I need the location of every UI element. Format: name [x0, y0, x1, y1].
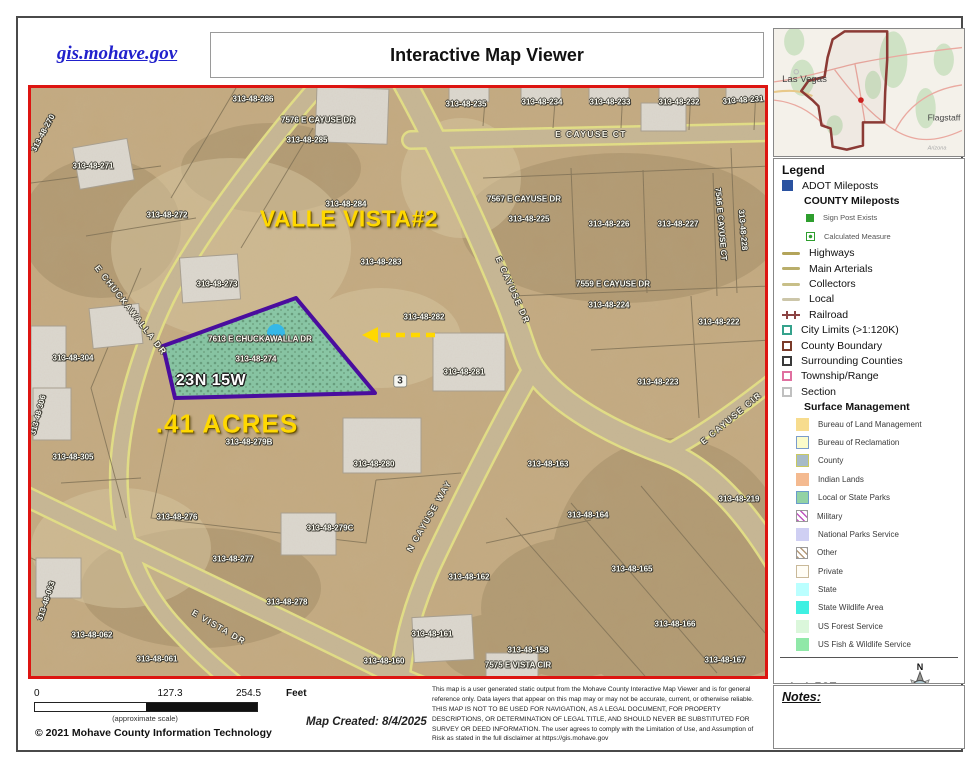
legend-item: Surrounding Counties — [782, 354, 964, 367]
legend-hatch-icon — [796, 510, 808, 522]
legend-item: Indian Lands — [782, 471, 964, 487]
legend-item-label: Railroad — [809, 309, 848, 321]
map-canvas: 313-48-270313-48-271313-48-272313-48-273… — [28, 85, 768, 679]
legend-item-label: Bureau of Reclamation — [818, 438, 899, 447]
legend-item: Sign Post Exists — [782, 210, 964, 226]
legend-item-label: City Limits (>1:120K) — [801, 324, 899, 336]
legend-fill-icon — [796, 418, 809, 431]
legend-item-label: Surrounding Counties — [801, 355, 903, 367]
page-title: Interactive Map Viewer — [210, 32, 764, 78]
legend-none-icon — [782, 403, 795, 412]
legend-item-label: Surface Management — [804, 401, 910, 413]
scale-bar — [34, 702, 258, 712]
notes-label: Notes: — [782, 690, 821, 704]
legend-item: Other — [782, 545, 964, 561]
legend-item: Main Arterials — [782, 262, 964, 275]
legend-rail-icon — [782, 310, 800, 319]
inset-arizona-label: Arizona — [927, 146, 947, 152]
scale-bar-black-segment — [146, 703, 257, 711]
legend-item-label: Military — [817, 512, 842, 521]
legend-item-label: County Boundary — [801, 340, 882, 352]
legend-fill-icon — [796, 473, 809, 486]
legend-fill-icon — [782, 180, 793, 191]
legend-item: Township/Range — [782, 370, 964, 383]
legend-outline-icon — [782, 325, 792, 335]
legend-item: US Forest Service — [782, 618, 964, 634]
legend-item-label: Highways — [809, 247, 855, 259]
inset-location-dot — [858, 97, 864, 103]
inset-las-vegas-label: Las Vegas — [782, 74, 827, 85]
legend-item: State Wildlife Area — [782, 600, 964, 616]
legend-item: COUNTY Mileposts — [782, 194, 964, 207]
legend-odash-icon — [782, 371, 792, 381]
legend-line-icon — [782, 283, 800, 286]
legend-item: Section — [782, 385, 964, 398]
legend-item: Calculated Measure — [782, 228, 964, 244]
legend-item: ADOT Mileposts — [782, 179, 964, 192]
legend-item: Collectors — [782, 277, 964, 290]
legend-item-label: Private — [818, 567, 843, 576]
legend-panel: Legend ADOT MilepostsCOUNTY MilepostsSig… — [773, 158, 965, 684]
locator-inset: Las Vegas Flagstaff Arizona — [773, 28, 965, 157]
legend-item: Highways — [782, 247, 964, 260]
legend-item: US Fish & Wildlife Service — [782, 637, 964, 653]
map-created-date: Map Created: 8/4/2025 — [306, 716, 427, 728]
legend-item: Private — [782, 563, 964, 579]
legend-item: National Parks Service — [782, 526, 964, 542]
scale-unit: Feet — [286, 688, 307, 699]
legend-fill-icon — [796, 638, 809, 651]
legend-item-label: ADOT Mileposts — [802, 180, 878, 192]
legend-item-label: Sign Post Exists — [823, 213, 877, 222]
legend-fill-icon — [796, 583, 809, 596]
legend-item-label: Township/Range — [801, 370, 879, 382]
legend-item: Bureau of Reclamation — [782, 434, 964, 450]
legend-item-label: Calculated Measure — [824, 232, 891, 241]
legend-none-icon — [782, 197, 795, 206]
legend-item: Local — [782, 293, 964, 306]
scale-tick-0: 0 — [34, 688, 40, 699]
legend-item: County — [782, 453, 964, 469]
legend-outline-icon — [782, 341, 792, 351]
legend-item-label: US Forest Service — [818, 622, 883, 631]
legend-fillb-icon — [796, 454, 809, 467]
copyright-text: © 2021 Mohave County Information Technol… — [35, 727, 272, 739]
legend-item-label: Collectors — [809, 278, 856, 290]
legend-fill-icon — [796, 601, 809, 614]
approx-scale-note: (approximate scale) — [74, 714, 216, 723]
legend-item-label: US Fish & Wildlife Service — [818, 640, 911, 649]
legend-line-icon — [782, 298, 800, 301]
notes-panel: Notes: — [773, 685, 965, 749]
legend-fillb-icon — [796, 491, 809, 504]
legend-outline-icon — [782, 356, 792, 366]
legend-title: Legend — [782, 163, 964, 177]
compass-n: N — [917, 662, 924, 672]
legend-item-label: Other — [817, 548, 837, 557]
aerial-map — [31, 88, 765, 676]
legend-fillb-icon — [796, 436, 809, 449]
map-scale-ratio: 1: 1,527 — [788, 680, 837, 684]
legend-item-label: Local — [809, 293, 834, 305]
legend-item: Bureau of Land Management — [782, 416, 964, 432]
inset-flagstaff-label: Flagstaff — [928, 112, 961, 122]
scale-bar-white-segment — [35, 703, 146, 711]
scale-tick-mid: 127.3 — [130, 688, 210, 699]
legend-item-label: Local or State Parks — [818, 493, 890, 502]
legend-item-label: COUNTY Mileposts — [804, 195, 899, 207]
legend-hatch-icon — [796, 547, 808, 559]
legend-item-label: Main Arterials — [809, 263, 873, 275]
legend-item: State — [782, 581, 964, 597]
legend-item: Railroad — [782, 308, 964, 321]
legend-fill-icon — [796, 620, 809, 633]
legend-item-label: County — [818, 456, 843, 465]
legend-item: Military — [782, 508, 964, 524]
legend-item-label: Section — [801, 386, 836, 398]
selected-point-marker — [267, 324, 285, 342]
legend-item-label: Indian Lands — [818, 475, 864, 484]
legend-fill-icon — [796, 528, 809, 541]
legend-dot-icon — [806, 214, 814, 222]
legend-item: Local or State Parks — [782, 489, 964, 505]
site-link[interactable]: gis.mohave.gov — [26, 32, 208, 76]
legend-line-icon — [782, 267, 800, 270]
legend-item-label: State — [818, 585, 837, 594]
disclaimer-text: This map is a user generated static outp… — [432, 685, 766, 744]
legend-items: ADOT MilepostsCOUNTY MilepostsSign Post … — [774, 179, 964, 653]
legend-item-label: National Parks Service — [818, 530, 899, 539]
map-export-page: gis.mohave.gov Interactive Map Viewer — [16, 16, 963, 752]
legend-item-label: State Wildlife Area — [818, 603, 883, 612]
compass-rose: N S E W — [894, 662, 946, 684]
legend-calc-icon — [806, 232, 815, 241]
legend-fillb-icon — [796, 565, 809, 578]
legend-item: County Boundary — [782, 339, 964, 352]
legend-item: City Limits (>1:120K) — [782, 324, 964, 337]
legend-item: Surface Management — [782, 400, 964, 413]
legend-item-label: Bureau of Land Management — [818, 420, 922, 429]
legend-line-icon — [782, 252, 800, 255]
legend-outline-icon — [782, 387, 792, 397]
